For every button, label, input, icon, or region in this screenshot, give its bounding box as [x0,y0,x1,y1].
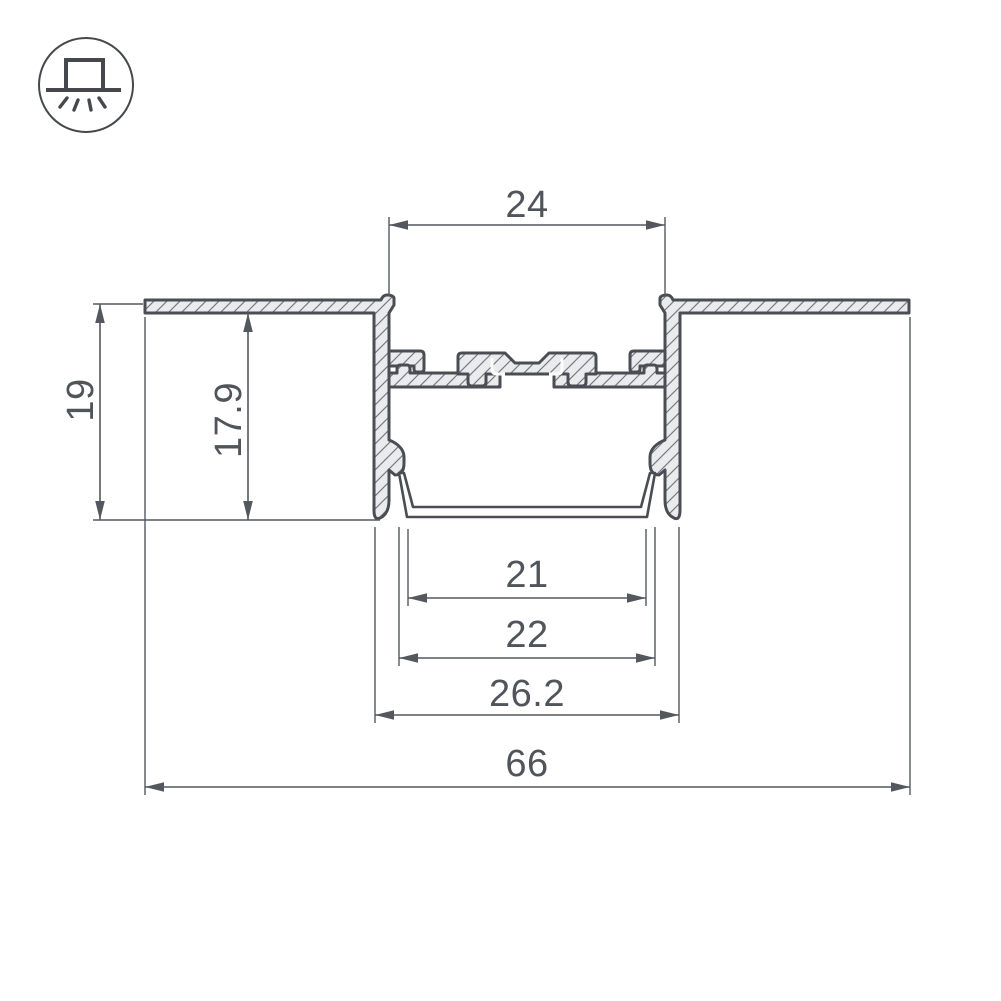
dim-label-66: 66 [505,743,548,785]
dim-top-opening: 24 [389,184,665,296]
dim-bottom-inner-width: 21 [408,529,646,606]
dim-inner-height: 17.9 [208,313,253,520]
dim-label-19: 19 [60,378,102,421]
recessed-mount-luminaire-icon [46,60,121,110]
technical-drawing-canvas: 24 19 17.9 21 [0,0,1001,1001]
dim-label-21: 21 [505,554,548,596]
diffuser [399,473,655,517]
dim-label-17-9: 17.9 [208,382,250,458]
dimensions-layer: 24 19 17.9 21 [60,184,910,795]
left-flange-and-wall [145,295,404,519]
dim-label-24: 24 [505,184,548,226]
dim-diffuser-width: 22 [399,527,655,666]
center-slab [458,353,596,386]
technical-drawing-page: 24 19 17.9 21 [0,0,1001,1001]
profile-cross-section [145,295,909,519]
right-flange-and-wall [650,295,909,519]
dim-label-22: 22 [505,614,548,656]
badge-circle [39,38,133,132]
mount-type-badge [39,38,133,132]
dim-label-26-2: 26.2 [489,673,565,715]
